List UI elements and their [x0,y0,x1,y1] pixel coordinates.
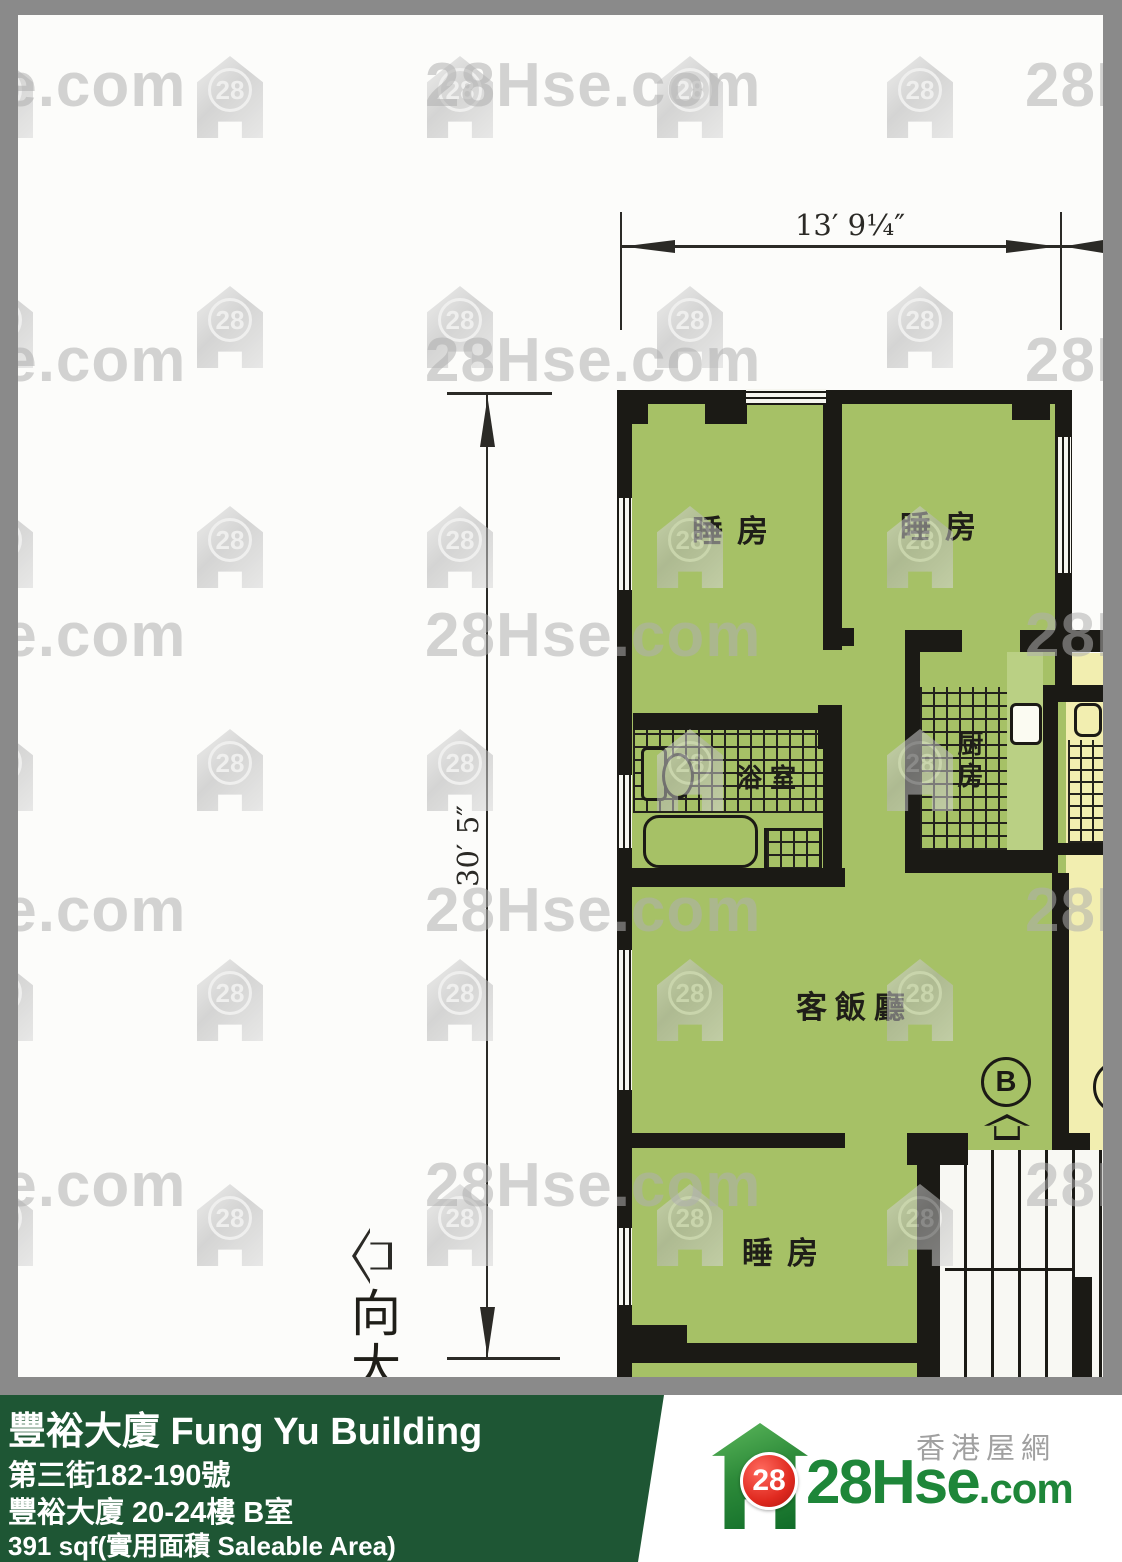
dimension-extent [447,392,552,395]
photo-frame-bottom [0,1377,1122,1395]
kitchen-sink [1010,703,1042,745]
room-label-bathroom: 浴室 [736,758,804,795]
area-info: 391 sqf(實用面積 Saleable Area) [8,1526,396,1562]
logo-28-badge-text: 28 [752,1464,785,1498]
dimension-arrowhead [623,240,675,253]
wall-segment [1043,685,1058,873]
unit-info: 豐裕大廈 20-24樓 B室 [8,1489,293,1531]
room-label-living-dining: 客飯廳 [796,982,913,1027]
wall-segment [620,1325,687,1363]
window [617,775,632,848]
orientation-arrow-fill [356,1232,388,1280]
wall-segment [905,630,920,873]
bathtub [643,815,758,868]
window [617,1228,632,1305]
dimension-arrowhead [480,1307,495,1357]
dimension-extent [620,212,622,330]
wall-segment [1020,630,1103,652]
logo-tagline: 香港屋網 [916,1425,1056,1467]
dimension-arrowhead [480,397,495,447]
kitchen-door-strip [1007,652,1043,852]
unit-b-badge: B [981,1057,1031,1107]
wall-segment [905,850,1058,873]
wall-segment [1052,1133,1090,1150]
dimension-extent [1060,212,1062,330]
wall-segment [917,1148,937,1377]
stair-landing-line [945,1268,1072,1271]
room-label-bedroom-top-left: 睡房 [692,506,782,551]
wall-column [1012,404,1050,420]
wall-segment [1058,843,1103,855]
wall-segment [617,868,845,887]
wall-column [625,404,648,424]
wall-segment [633,713,828,730]
shower-tray [764,828,822,872]
dimension-width-label: 13′ 9¼″ [790,208,910,242]
building-title: 豐裕大廈 Fung Yu Building [8,1400,482,1455]
wall-segment [620,390,1072,404]
orientation-arrow-icon [352,1228,392,1284]
wall-segment [823,713,842,887]
neighbor-fixture [1074,703,1102,737]
wall-segment [1058,685,1103,702]
room-fill-top [620,390,1072,702]
plan-canvas: 睡房 睡房 浴室 厨房 客飯廳 睡房 B 13′ 9¼″ 30′ 5″ [0,0,1122,1395]
room-label-bedroom-top-right: 睡房 [900,502,990,547]
dimension-arrowhead [1063,240,1103,253]
photo-frame-left [0,0,18,1395]
window [617,950,632,1090]
dimension-extent [447,1357,560,1360]
wall-segment [1052,873,1069,1135]
dimension-height-label: 30′ 5″ [451,791,485,901]
neighbor-tiles [1068,740,1103,843]
window [1056,437,1071,573]
wall-segment [632,1133,845,1148]
footer-bar: 豐裕大廈 Fung Yu Building 第三街182-190號 豐裕大廈 2… [0,1395,1122,1562]
floor-plan-page: 睡房 睡房 浴室 厨房 客飯廳 睡房 B 13′ 9¼″ 30′ 5″ [0,0,1122,1562]
room-label-bedroom-bottom: 睡房 [742,1228,832,1273]
wall-segment [1072,1277,1092,1377]
toilet-bowl [662,753,694,799]
photo-frame-right [1103,0,1122,1395]
building-address: 第三街182-190號 [8,1452,230,1494]
dimension-arrowhead [1006,240,1058,253]
wall-segment [840,628,854,646]
window [746,389,826,405]
unit-b-label: B [996,1066,1017,1099]
wall-column [705,404,747,424]
wall-segment [823,390,842,650]
window [617,498,632,590]
logo-brand-suffix: .com [979,1465,1073,1512]
dimension-line [486,394,488,1359]
logo-28-badge: 28 [740,1452,798,1510]
room-label-kitchen: 厨房 [950,730,987,794]
photo-frame-top [0,0,1122,15]
